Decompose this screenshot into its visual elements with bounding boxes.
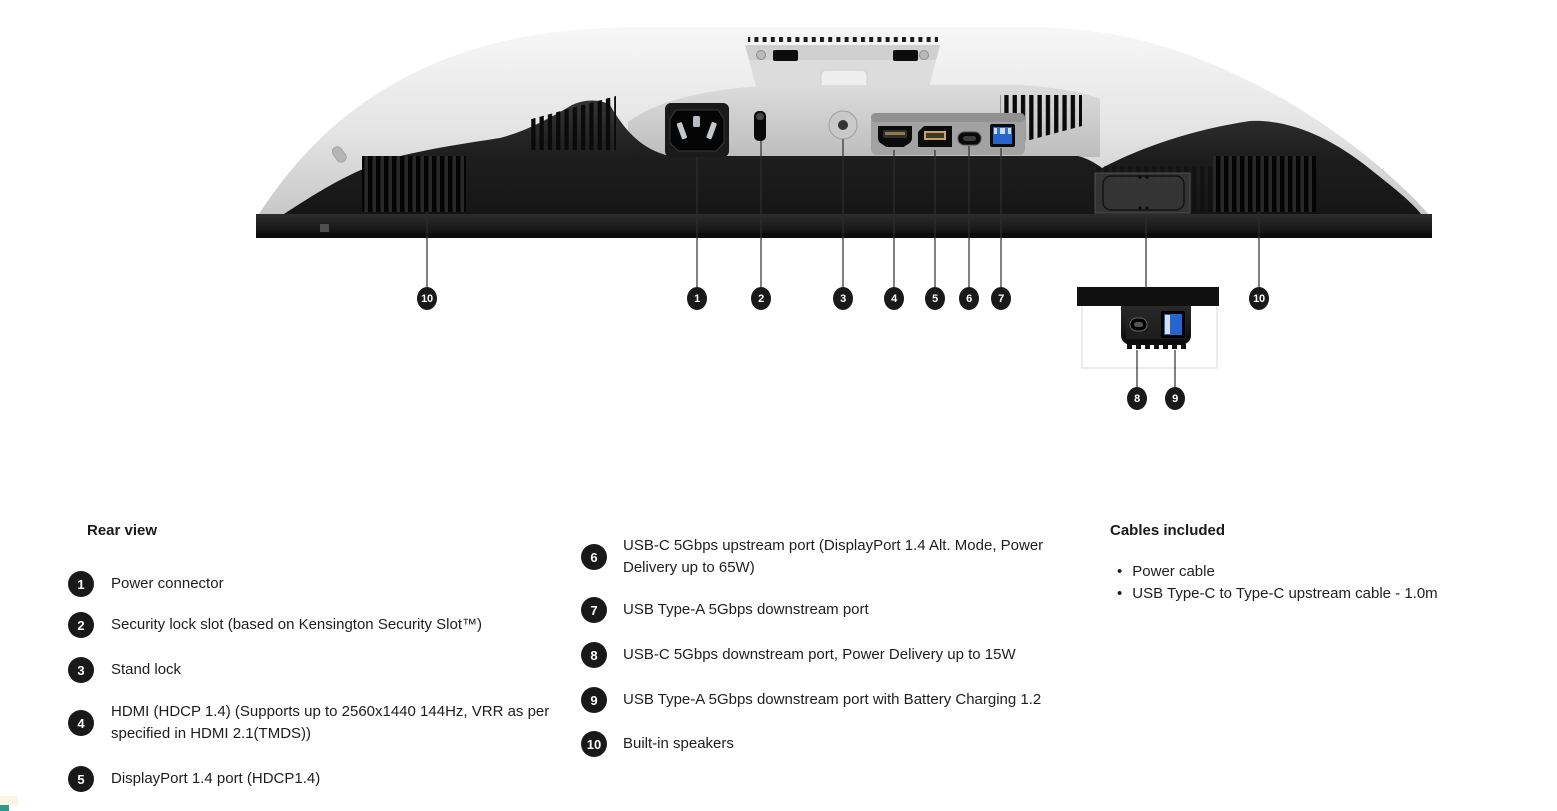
- bezel-detail: [320, 224, 329, 232]
- callout-10-right: 10: [1249, 287, 1269, 310]
- legend-item-5-label: DisplayPort 1.4 port (HDCP1.4): [111, 768, 566, 790]
- corner-artifact: [0, 805, 9, 811]
- legend-item-2: 2 Security lock slot (based on Kensingto…: [68, 612, 566, 638]
- stand-lock-graphic: [829, 111, 857, 139]
- cable-item-2-label: USB Type-C to Type-C upstream cable - 1.…: [1132, 583, 1437, 605]
- cable-item-2: • USB Type-C to Type-C upstream cable - …: [1117, 583, 1438, 605]
- legend-item-3: 3 Stand lock: [68, 657, 566, 683]
- displayport-graphic: [918, 126, 952, 147]
- vesa-slot-left: [773, 50, 798, 61]
- callout-7: 7: [991, 287, 1011, 310]
- legend-item-6: 6 USB-C 5Gbps upstream port (DisplayPort…: [581, 534, 1063, 580]
- left-speaker-grille: [362, 156, 466, 212]
- legend-item-10-label: Built-in speakers: [623, 733, 1063, 755]
- legend-item-7: 7 USB Type-A 5Gbps downstream port: [581, 597, 1063, 623]
- legend-item-6-label: USB-C 5Gbps upstream port (DisplayPort 1…: [623, 535, 1063, 579]
- rear-view-heading: Rear view: [87, 522, 157, 539]
- inset-usbc-port-graphic: [1130, 318, 1147, 331]
- monitor-illustration: [0, 0, 1557, 470]
- legend-item-2-label: Security lock slot (based on Kensington …: [111, 614, 566, 636]
- power-port-graphic: [665, 103, 729, 157]
- legend-item-2-number: 2: [68, 612, 94, 638]
- cable-item-1: • Power cable: [1117, 561, 1215, 583]
- inset-usba-port-graphic: [1161, 311, 1185, 338]
- legend-item-7-number: 7: [581, 597, 607, 623]
- quick-access-inset: [1077, 287, 1219, 368]
- legend-item-3-label: Stand lock: [111, 659, 566, 681]
- bullet-icon: •: [1117, 583, 1122, 605]
- cables-included-heading: Cables included: [1110, 522, 1225, 539]
- legend-item-8-label: USB-C 5Gbps downstream port, Power Deliv…: [623, 644, 1063, 666]
- legend-item-5-number: 5: [68, 766, 94, 792]
- callout-4: 4: [884, 287, 904, 310]
- inset-bezel-bar: [1077, 287, 1219, 306]
- legend-item-5: 5 DisplayPort 1.4 port (HDCP1.4): [68, 766, 566, 792]
- legend-item-10-number: 10: [581, 731, 607, 757]
- page: 1 2 3 4 5 6 7 10 10 8 9 Rear view 1 Powe…: [0, 0, 1557, 811]
- callout-5: 5: [925, 287, 945, 310]
- bullet-icon: •: [1117, 561, 1122, 583]
- screw-left-icon: [757, 51, 766, 60]
- callout-2: 2: [751, 287, 771, 310]
- legend-item-4-number: 4: [68, 710, 94, 736]
- legend-item-8-number: 8: [581, 642, 607, 668]
- callout-6: 6: [959, 287, 979, 310]
- legend-item-1-number: 1: [68, 571, 94, 597]
- kensington-slot-graphic: [754, 111, 766, 141]
- callout-8: 8: [1127, 387, 1147, 410]
- usbc-port-graphic: [958, 132, 981, 145]
- callout-10-left: 10: [417, 287, 437, 310]
- vent-dashes: [748, 37, 938, 42]
- cable-item-1-label: Power cable: [1132, 561, 1215, 583]
- callout-1: 1: [687, 287, 707, 310]
- legend-item-4-label: HDMI (HDCP 1.4) (Supports up to 2560x144…: [111, 701, 566, 745]
- legend-item-9-label: USB Type-A 5Gbps downstream port with Ba…: [623, 689, 1063, 711]
- legend-item-8: 8 USB-C 5Gbps downstream port, Power Del…: [581, 642, 1063, 668]
- legend-item-3-number: 3: [68, 657, 94, 683]
- usba-port-graphic: [990, 124, 1015, 147]
- legend-item-7-label: USB Type-A 5Gbps downstream port: [623, 599, 1063, 621]
- corner-artifact: [0, 796, 18, 805]
- vesa-slot-right: [893, 50, 918, 61]
- callout-3: 3: [833, 287, 853, 310]
- monitor-rear-diagram: 1 2 3 4 5 6 7 10 10 8 9: [0, 0, 1557, 470]
- legend-item-9-number: 9: [581, 687, 607, 713]
- legend-item-1-label: Power connector: [111, 573, 566, 595]
- quick-access-door-graphic: [1095, 173, 1190, 213]
- right-speaker-grille: [1213, 156, 1316, 212]
- hdmi-port-graphic: [878, 126, 912, 147]
- legend-item-9: 9 USB Type-A 5Gbps downstream port with …: [581, 687, 1063, 713]
- legend-item-10: 10 Built-in speakers: [581, 731, 1063, 757]
- screw-right-icon: [920, 51, 929, 60]
- legend-item-6-number: 6: [581, 544, 607, 570]
- legend-item-4: 4 HDMI (HDCP 1.4) (Supports up to 2560x1…: [68, 700, 566, 746]
- callout-9: 9: [1165, 387, 1185, 410]
- legend-item-1: 1 Power connector: [68, 571, 566, 597]
